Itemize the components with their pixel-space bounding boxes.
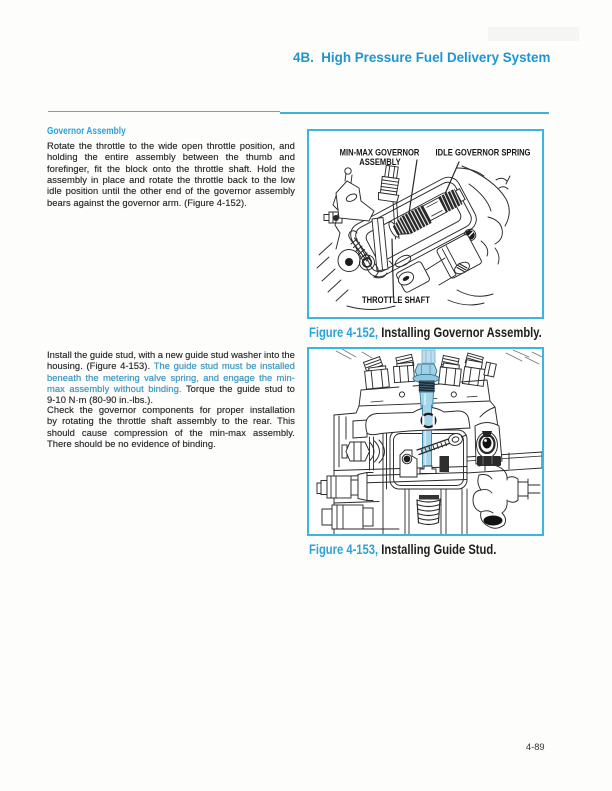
- svg-text:ASSEMBLY: ASSEMBLY: [359, 156, 401, 167]
- svg-text:THROTTLE SHAFT: THROTTLE SHAFT: [362, 294, 431, 305]
- svg-text:IDLE GOVERNOR SPRING: IDLE GOVERNOR SPRING: [436, 147, 531, 158]
